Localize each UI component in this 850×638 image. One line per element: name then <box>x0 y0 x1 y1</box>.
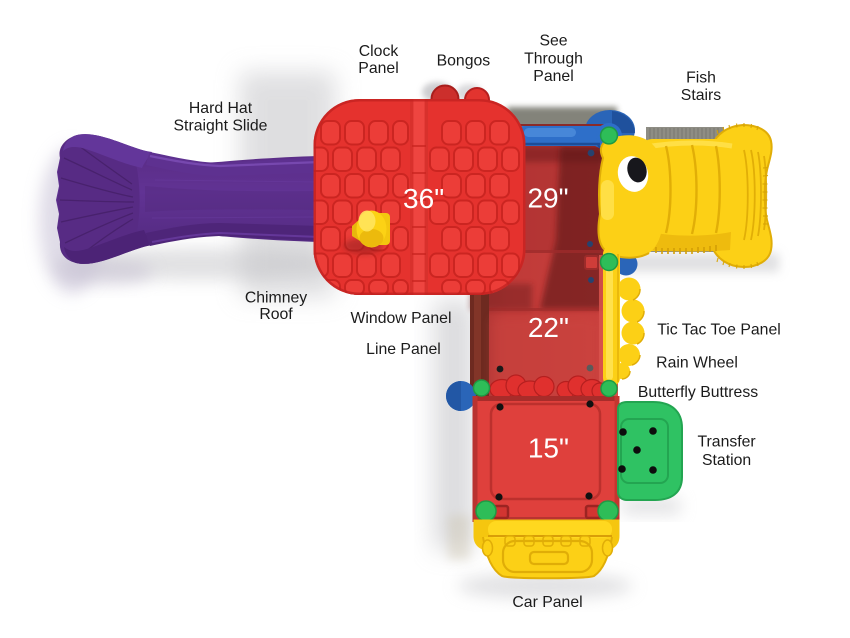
svg-text:Panel: Panel <box>358 60 398 77</box>
svg-text:Window Panel: Window Panel <box>351 310 452 327</box>
svg-text:Station: Station <box>702 452 751 469</box>
svg-text:Rain Wheel: Rain Wheel <box>656 354 738 371</box>
svg-text:Bongos: Bongos <box>437 53 491 70</box>
svg-text:Roof: Roof <box>259 306 293 323</box>
svg-text:Stairs: Stairs <box>681 87 721 104</box>
svg-text:Transfer: Transfer <box>697 434 755 451</box>
svg-text:Butterfly Buttress: Butterfly Buttress <box>638 384 758 401</box>
svg-text:Straight Slide: Straight Slide <box>174 118 268 135</box>
svg-text:15": 15" <box>528 433 569 464</box>
svg-text:Hard Hat: Hard Hat <box>189 100 253 117</box>
svg-text:Through: Through <box>524 51 583 68</box>
svg-text:Car Panel: Car Panel <box>512 594 582 611</box>
svg-text:Clock: Clock <box>359 43 399 60</box>
svg-text:29": 29" <box>527 183 568 214</box>
svg-text:22": 22" <box>528 312 569 343</box>
svg-text:36": 36" <box>403 183 444 214</box>
svg-text:Fish: Fish <box>686 70 716 87</box>
svg-text:See: See <box>539 33 567 50</box>
svg-text:Chimney: Chimney <box>245 290 307 307</box>
svg-text:Line Panel: Line Panel <box>366 341 441 358</box>
svg-text:Panel: Panel <box>533 68 573 85</box>
svg-text:Tic Tac Toe Panel: Tic Tac Toe Panel <box>657 321 781 338</box>
